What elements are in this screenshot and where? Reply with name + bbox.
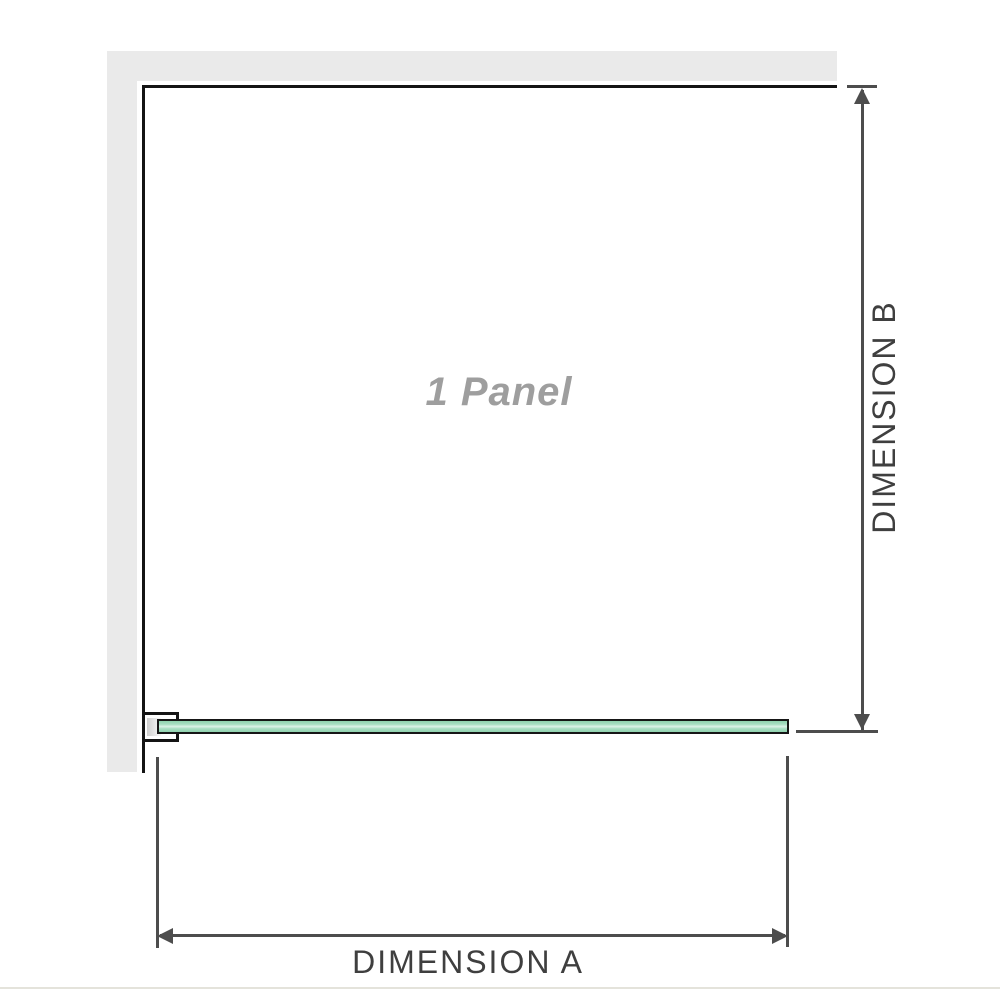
dimension-b-arrow-up-icon — [854, 88, 870, 104]
glass-panel — [157, 719, 789, 734]
dimension-a-extension-right — [786, 756, 789, 947]
dimension-b-arrow-down-icon — [854, 714, 870, 730]
shower-panel-dimension-diagram: 1 Panel DIMENSION B DIMENSION A — [0, 0, 1000, 1000]
dimension-b-label: DIMENSION B — [862, 267, 906, 567]
wall-band-vertical — [107, 51, 137, 772]
wall-band-horizontal — [107, 51, 837, 81]
dimension-a-arrow-right-icon — [772, 928, 788, 944]
dimension-a-extension-left — [156, 757, 159, 948]
dimension-b-tick-bottom — [796, 730, 878, 733]
wall-edge-left-line — [142, 85, 145, 773]
panel-count-label: 1 Panel — [339, 370, 659, 415]
dimension-a-arrow-left-icon — [157, 928, 173, 944]
footer-rule — [0, 987, 1000, 989]
dimension-a-line — [160, 934, 785, 937]
wall-edge-top-line — [142, 85, 837, 88]
dimension-a-label: DIMENSION A — [268, 944, 668, 981]
